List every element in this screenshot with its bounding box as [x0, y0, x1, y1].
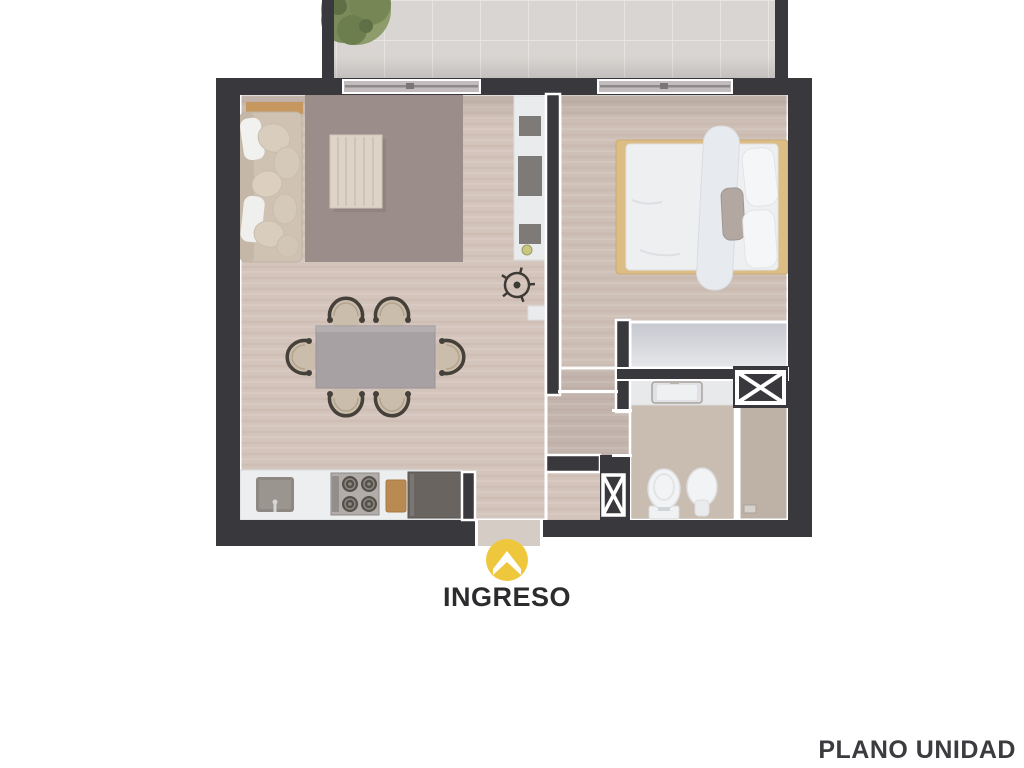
living-room-window — [343, 80, 480, 93]
shower-floor — [739, 404, 788, 520]
stove — [331, 473, 379, 515]
left-wall — [216, 78, 240, 546]
pillow — [741, 146, 779, 207]
toilet — [648, 469, 680, 519]
kitchen-appliance — [408, 472, 462, 518]
vanity — [630, 380, 735, 405]
bottom-wall-left — [216, 520, 475, 546]
bedroom-door-threshold — [558, 390, 618, 393]
bathroom-door-jamb — [612, 409, 632, 412]
floor-plan-image: INGRESO PLANO UNIDAD — [0, 0, 1024, 768]
balcony-left-wall — [322, 0, 334, 78]
bathroom-door-jamb — [612, 454, 632, 457]
dining-table — [316, 326, 435, 388]
bottom-wall-right — [543, 520, 812, 537]
plan-title: PLANO UNIDAD — [818, 736, 1016, 765]
right-wall — [788, 78, 812, 537]
bedroom-window — [598, 80, 732, 93]
entry-jamb-right — [540, 520, 543, 546]
floor-plan-svg — [0, 0, 1024, 768]
closet — [630, 322, 788, 368]
closet-side-wall — [616, 320, 630, 412]
entrance-label: INGRESO — [417, 582, 597, 613]
side-shelf — [528, 306, 546, 320]
kitchen — [240, 470, 462, 520]
crossed-box-duct-icon — [603, 475, 624, 515]
balcony-wall-shadow — [334, 56, 775, 78]
entrance-marker — [486, 539, 528, 581]
balcony — [321, 0, 788, 78]
kitchen-sink — [256, 477, 294, 512]
bed-cushion — [721, 187, 746, 240]
balcony-right-wall — [775, 0, 788, 78]
coffee-table — [330, 135, 386, 212]
entry-wall-stub — [462, 472, 475, 520]
crossed-box-duct-icon — [733, 366, 788, 408]
sofa — [239, 102, 303, 262]
cutting-board — [386, 480, 406, 512]
bedroom-shadow — [560, 94, 788, 124]
pillow — [742, 209, 778, 269]
living-bedroom-divider-wall — [546, 94, 560, 395]
shower-drain — [744, 505, 756, 513]
bedroom-furniture — [616, 125, 788, 291]
hallway-wall — [546, 455, 600, 472]
entry-jamb-left — [475, 520, 478, 546]
bed — [616, 125, 788, 291]
